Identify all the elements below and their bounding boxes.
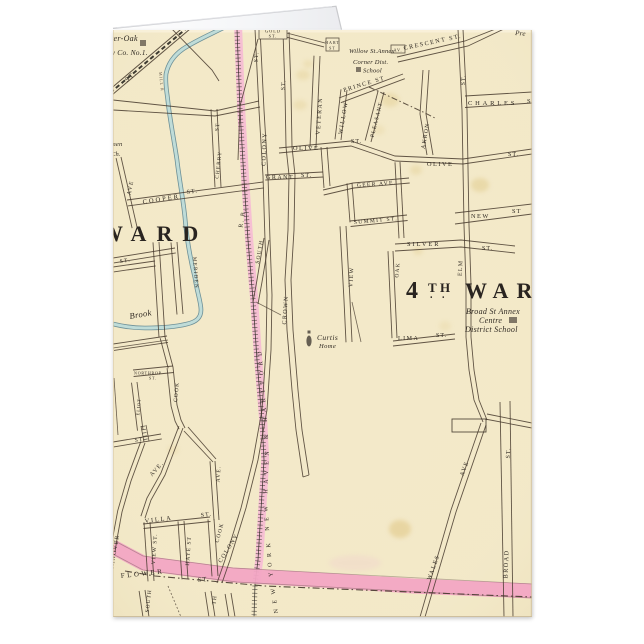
svg-text:HART: HART: [325, 40, 340, 45]
svg-text:ST.: ST.: [281, 79, 288, 90]
svg-text:District School: District School: [464, 325, 518, 334]
svg-text:ST.: ST.: [461, 74, 468, 85]
svg-text:CHARLES: CHARLES: [468, 100, 517, 107]
svg-text:Willow St.Annex: Willow St.Annex: [349, 48, 395, 55]
svg-text:Pre: Pre: [514, 30, 526, 38]
svg-text:OLIVE: OLIVE: [293, 145, 319, 152]
svg-text:AVE.: AVE.: [216, 465, 223, 482]
svg-text:ST.: ST.: [197, 575, 209, 583]
svg-text:ST.: ST.: [506, 447, 512, 458]
svg-text:Ch.: Ch.: [113, 151, 121, 158]
svg-text:ST: ST: [215, 122, 222, 131]
svg-text:School: School: [363, 67, 382, 74]
svg-text:.: .: [430, 290, 434, 301]
svg-text:ST.: ST.: [351, 139, 362, 145]
svg-text:4: 4: [406, 278, 418, 304]
svg-text:ST.: ST.: [254, 51, 261, 62]
svg-text:GRANT: GRANT: [266, 175, 294, 181]
svg-text:NORTHROP: NORTHROP: [134, 370, 162, 375]
svg-text:Broad St Annex: Broad St Annex: [466, 307, 520, 316]
svg-text:men: men: [113, 141, 122, 148]
svg-text:ST: ST: [329, 45, 336, 50]
svg-text:NEW: NEW: [471, 213, 490, 220]
svg-text:ELM: ELM: [458, 259, 465, 276]
svg-text:TH: TH: [212, 594, 219, 604]
svg-text:ST.: ST.: [301, 173, 312, 179]
svg-text:ter-Oak: ter-Oak: [113, 34, 138, 43]
svg-text:AV.: AV.: [393, 47, 402, 52]
svg-text:Corner Dist.: Corner Dist.: [353, 59, 388, 66]
svg-text:Home: Home: [318, 343, 336, 350]
svg-text:.: .: [442, 290, 446, 301]
svg-text:OLIVE: OLIVE: [427, 161, 453, 168]
svg-text:Centre: Centre: [479, 316, 502, 325]
svg-text:WARD: WARD: [465, 278, 532, 303]
svg-text:ST.: ST.: [269, 33, 278, 38]
svg-text:ST: ST: [512, 208, 521, 215]
svg-text:WARD: WARD: [113, 221, 208, 246]
svg-text:ST.: ST.: [149, 375, 157, 380]
svg-text:SILVER: SILVER: [407, 241, 440, 248]
svg-text:ST.: ST.: [436, 333, 447, 339]
svg-text:BROAD: BROAD: [502, 549, 510, 578]
svg-text:w Co. No.1.: w Co. No.1.: [113, 48, 148, 57]
svg-text:Curtis: Curtis: [317, 333, 338, 342]
svg-text:COLONY: COLONY: [261, 131, 268, 165]
svg-text:ST.: ST.: [508, 152, 519, 158]
svg-text:ST.: ST.: [482, 246, 493, 252]
svg-text:VIEW: VIEW: [348, 266, 355, 287]
svg-text:LIMA: LIMA: [398, 336, 419, 342]
